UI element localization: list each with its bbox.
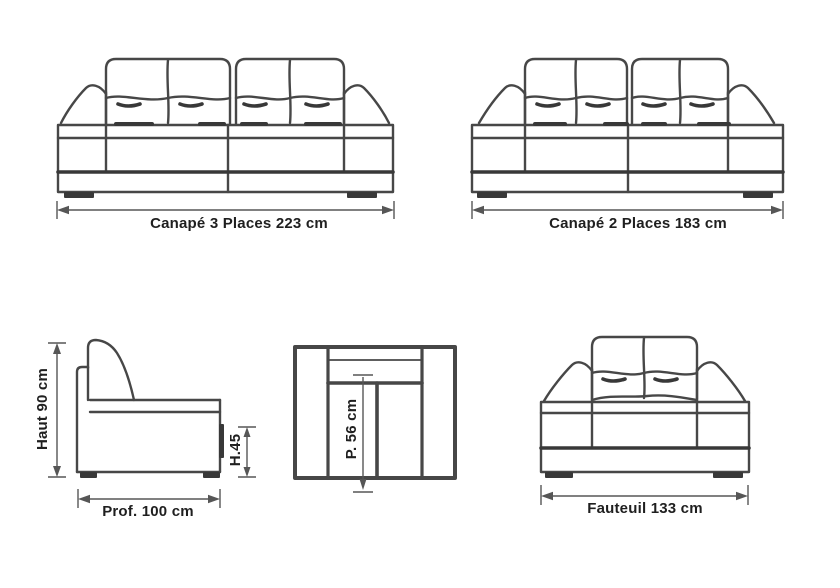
figure-fauteuil: [535, 333, 755, 508]
canape-2-places-drawing: [465, 52, 790, 222]
sofa3-feet: [64, 122, 377, 198]
height-dimension-label: Haut 90 cm: [35, 344, 53, 474]
canape-3-places-dimension-label: Canapé 3 Places 223 cm: [74, 216, 404, 232]
fauteuil-drawing: [535, 333, 755, 508]
seat-height-dimension-label: H.45: [228, 422, 244, 478]
fauteuil-outline: [541, 337, 749, 472]
fauteuil-dimension-label: Fauteuil 133 cm: [535, 501, 755, 517]
side-feet: [80, 424, 224, 478]
figure-canape-3-places: [48, 52, 398, 222]
furniture-dimensions-diagram: Canapé 3 Places 223 cm: [0, 0, 840, 588]
figure-canape-2-places: [465, 52, 790, 222]
figure-top-view: [287, 340, 467, 500]
top-view-outline: [295, 347, 455, 478]
top-view-drawing: [287, 340, 467, 500]
canape-3-places-drawing: [48, 52, 398, 222]
canape-2-places-dimension-label: Canapé 2 Places 183 cm: [473, 216, 803, 232]
side-outline: [77, 340, 220, 472]
seat-depth-dimension-label: P. 56 cm: [344, 384, 360, 474]
depth-dimension-label: Prof. 100 cm: [68, 504, 228, 520]
